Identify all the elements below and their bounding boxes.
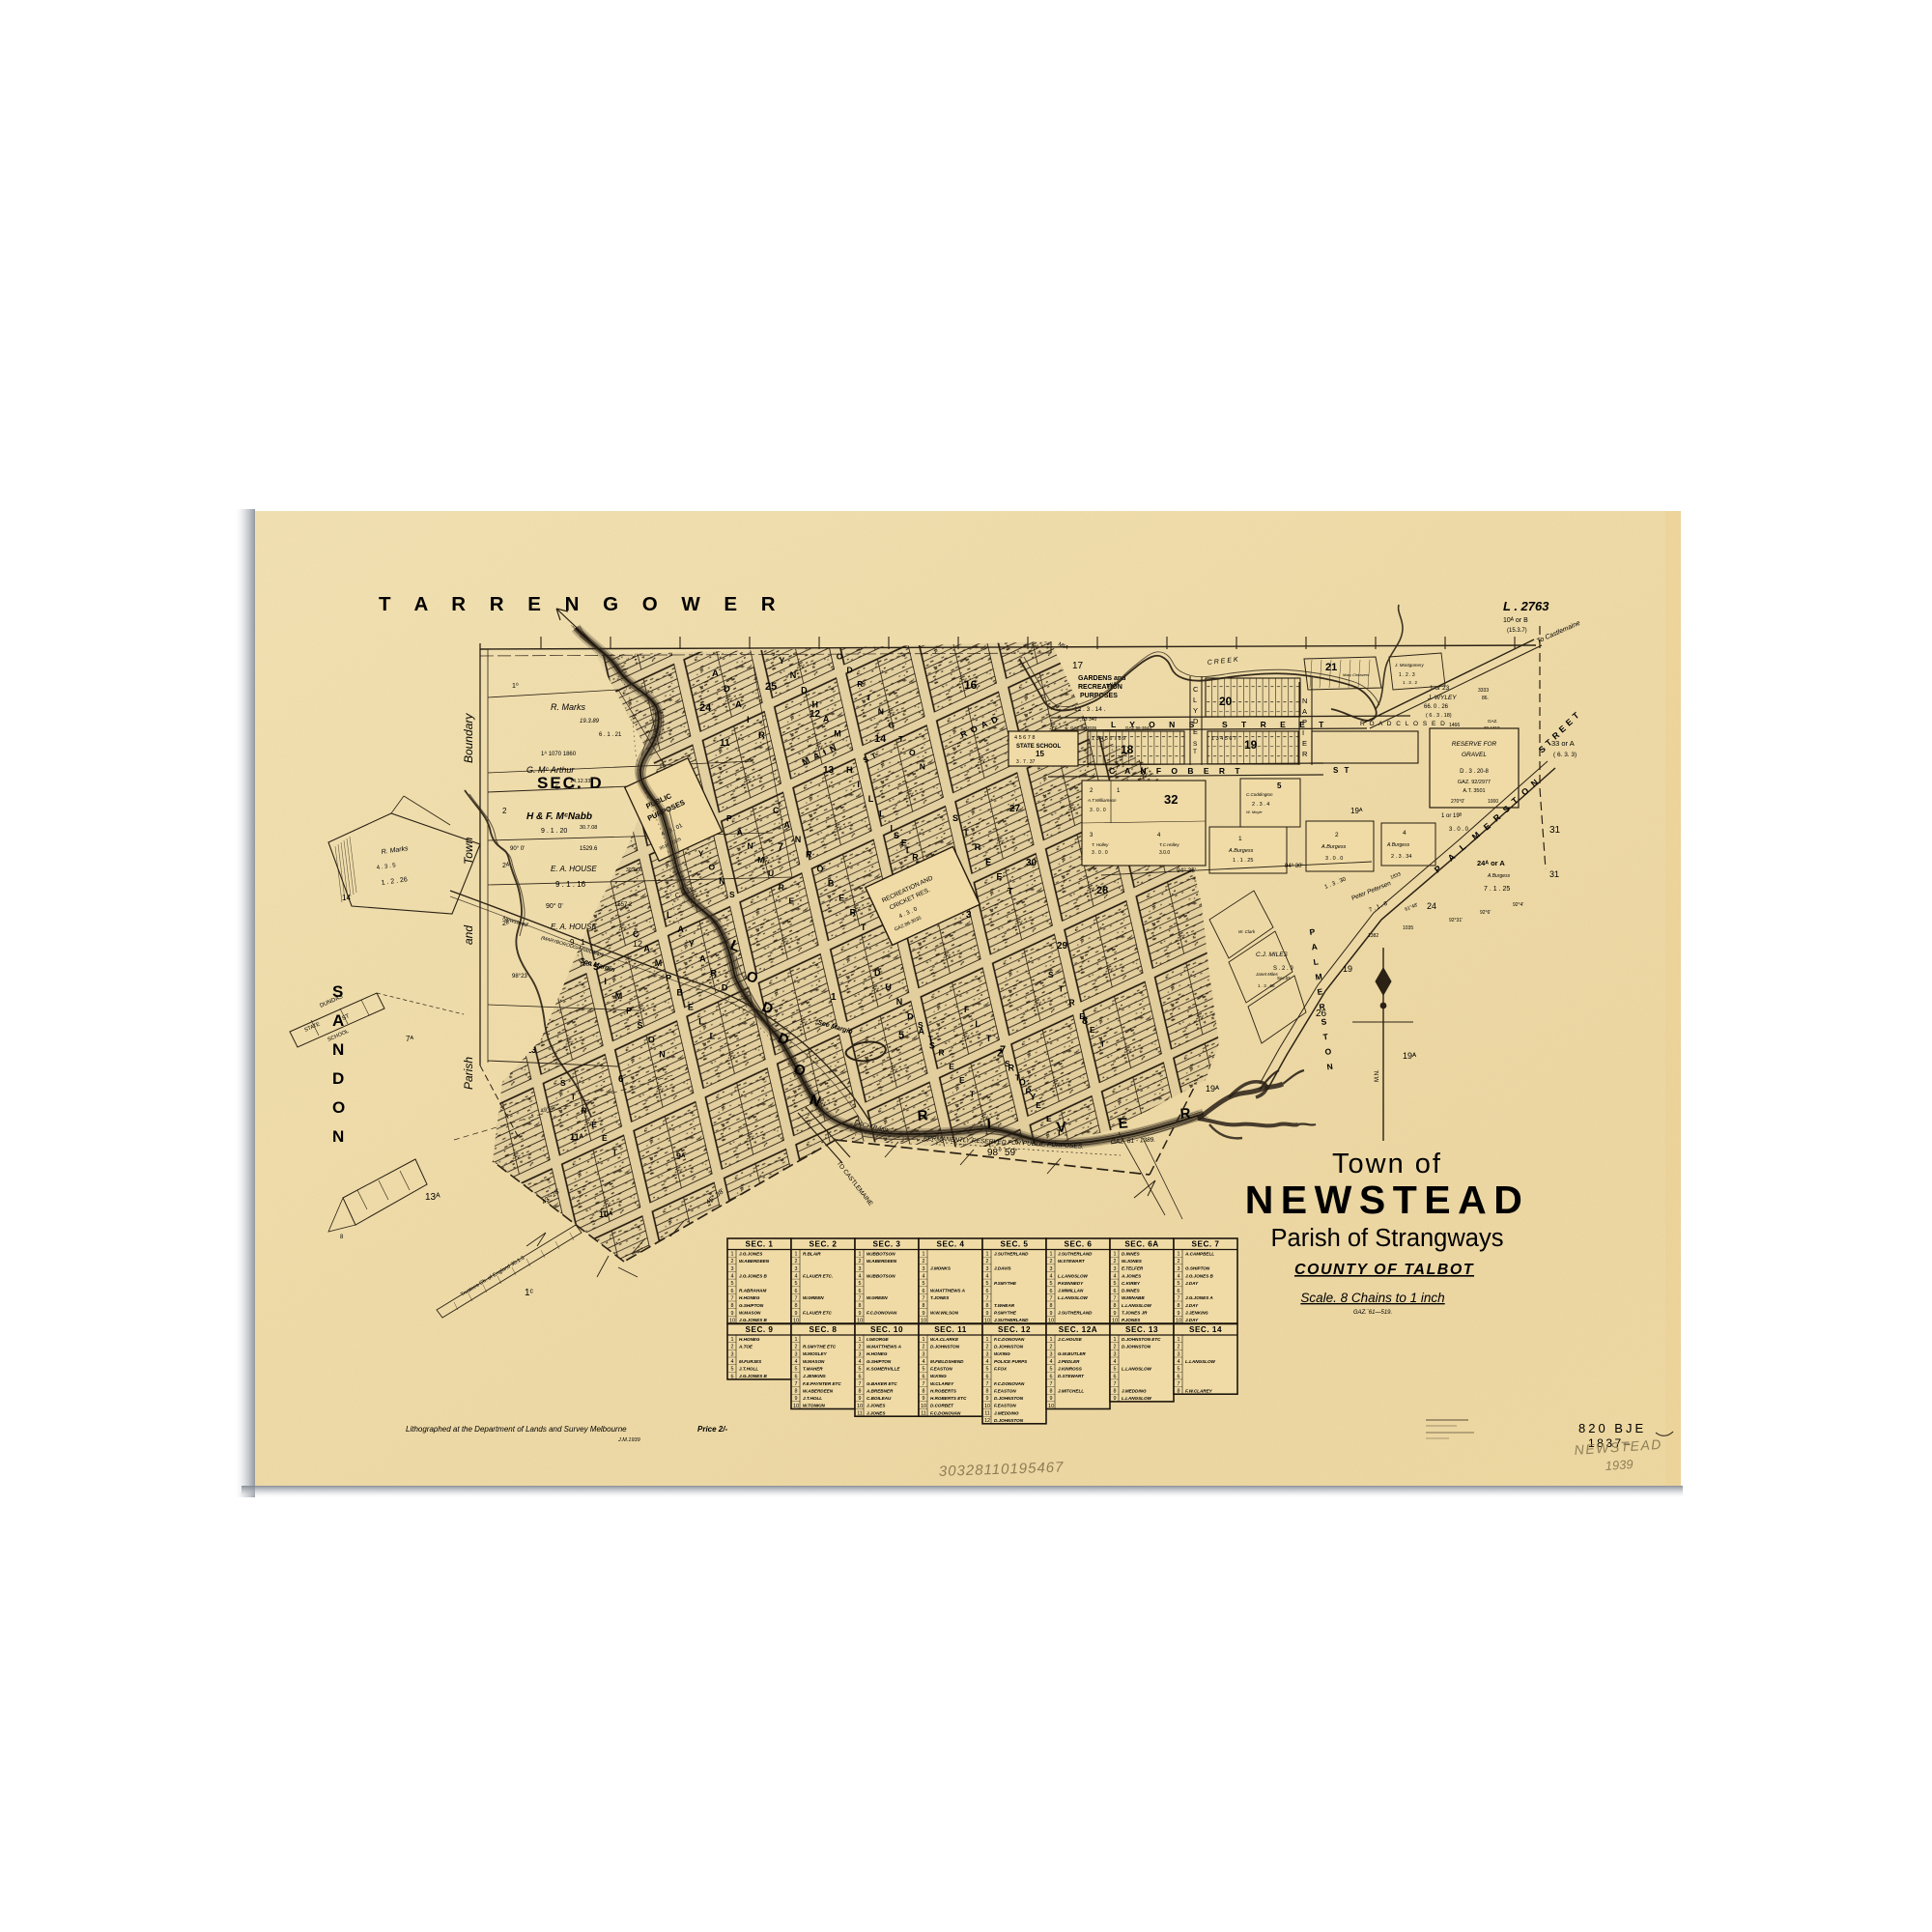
svg-text:W.MATTHEWS A: W.MATTHEWS A <box>867 1345 901 1350</box>
svg-text:J.SUTHERLAND: J.SUTHERLAND <box>1058 1311 1093 1316</box>
svg-text:W.ABERDEEN: W.ABERDEEN <box>739 1259 770 1264</box>
svg-text:29: 29 <box>1057 941 1068 952</box>
svg-text:2 . 3 . 34: 2 . 3 . 34 <box>1391 854 1411 860</box>
svg-text:E: E <box>949 1062 954 1071</box>
svg-text:T: T <box>571 1092 577 1101</box>
svg-text:3: 3 <box>731 1266 734 1272</box>
svg-text:D: D <box>801 685 808 695</box>
svg-text:A: A <box>712 668 719 679</box>
svg-text:U: U <box>768 868 774 878</box>
svg-text:4: 4 <box>986 1359 989 1365</box>
svg-text:1: 1 <box>1050 1337 1053 1343</box>
svg-text:19: 19 <box>1244 738 1258 752</box>
svg-text:14: 14 <box>342 894 351 902</box>
svg-text:3: 3 <box>795 1266 798 1272</box>
svg-text:T: T <box>986 1034 992 1043</box>
svg-text:30: 30 <box>1026 858 1037 868</box>
svg-text:1: 1 <box>859 1337 862 1343</box>
svg-text:21: 21 <box>1325 662 1337 673</box>
svg-text:RESERVE FOR: RESERVE FOR <box>1452 741 1497 748</box>
svg-text:E.TELFER: E.TELFER <box>1122 1266 1144 1271</box>
svg-text:W.IBBOTSON: W.IBBOTSON <box>867 1251 895 1256</box>
svg-text:H & F. MᶜNabb: H & F. MᶜNabb <box>526 811 592 822</box>
svg-text:4: 4 <box>1114 1274 1117 1280</box>
svg-text:R: R <box>758 730 765 741</box>
svg-text:10: 10 <box>984 1318 990 1323</box>
svg-text:9: 9 <box>1050 1396 1053 1402</box>
svg-text:A.TOE: A.TOE <box>738 1345 753 1350</box>
svg-text:6 . 1 . 21: 6 . 1 . 21 <box>599 732 622 738</box>
svg-text:3: 3 <box>986 1351 989 1357</box>
svg-text:R: R <box>1179 1105 1191 1122</box>
svg-text:S T R E E T: S T R E E T <box>1222 720 1329 729</box>
svg-text:H.HONEG: H.HONEG <box>739 1337 760 1342</box>
svg-text:2: 2 <box>1335 832 1339 838</box>
svg-text:J.JONES: J.JONES <box>867 1410 886 1415</box>
svg-text:E: E <box>997 871 1003 881</box>
svg-text:W.STEWART: W.STEWART <box>1058 1259 1086 1264</box>
svg-text:1: 1 <box>1178 1252 1180 1258</box>
svg-text:L.LANGSLOW: L.LANGSLOW <box>1058 1273 1089 1278</box>
svg-text:E: E <box>985 857 991 867</box>
svg-text:1529.6: 1529.6 <box>580 846 598 852</box>
svg-text:R: R <box>857 679 863 689</box>
svg-text:3 . 0 . 0: 3 . 0 . 0 <box>1325 856 1343 862</box>
svg-text:POLICE PURPS: POLICE PURPS <box>994 1359 1028 1364</box>
svg-text:1⁰: 1⁰ <box>512 682 519 690</box>
svg-text:Price 2/-: Price 2/- <box>697 1425 727 1434</box>
svg-text:7ᴬ: 7ᴬ <box>406 1035 413 1043</box>
svg-text:U: U <box>885 982 892 992</box>
svg-text:L.LANGSLOW: L.LANGSLOW <box>1185 1359 1216 1364</box>
svg-text:J.G.JONES B: J.G.JONES B <box>739 1374 768 1378</box>
svg-text:C.KIRBY: C.KIRBY <box>1122 1281 1141 1286</box>
svg-text:E: E <box>838 894 844 903</box>
svg-text:SEC. 12A: SEC. 12A <box>1059 1325 1097 1334</box>
svg-text:J.G.JONES: J.G.JONES <box>739 1251 763 1256</box>
svg-text:R.ABRAHAM: R.ABRAHAM <box>739 1289 766 1293</box>
svg-text:( 6. 3. 3): ( 6. 3. 3) <box>1553 752 1577 758</box>
svg-text:3 . 0 . 0: 3 . 0 . 0 <box>1092 850 1108 856</box>
svg-text:L.LANGSLOW: L.LANGSLOW <box>1058 1295 1089 1300</box>
svg-text:86.: 86. <box>1482 696 1489 701</box>
svg-text:5: 5 <box>795 1281 798 1287</box>
svg-text:2: 2 <box>731 1345 734 1350</box>
svg-text:16: 16 <box>964 678 978 692</box>
svg-text:J.DAY: J.DAY <box>1185 1318 1199 1322</box>
svg-text:8: 8 <box>986 1303 989 1309</box>
svg-text:4: 4 <box>1050 1359 1053 1365</box>
svg-text:2: 2 <box>795 1259 798 1264</box>
svg-text:W.CLAREY: W.CLAREY <box>930 1381 954 1386</box>
svg-text:6: 6 <box>1178 1289 1180 1294</box>
svg-text:1: 1 <box>1114 1252 1117 1258</box>
svg-text:E. A. HOUSE: E. A. HOUSE <box>551 865 597 873</box>
svg-text:D.JOHNSTON: D.JOHNSTON <box>994 1418 1024 1423</box>
svg-text:SEC. D: SEC. D <box>537 774 604 792</box>
svg-text:3: 3 <box>966 910 972 921</box>
svg-text:A.BREBNER: A.BREBNER <box>866 1388 894 1393</box>
svg-text:J.MEDDING: J.MEDDING <box>1122 1388 1147 1393</box>
svg-text:F.C.DONOVAN: F.C.DONOVAN <box>994 1381 1025 1386</box>
svg-text:9: 9 <box>923 1396 925 1402</box>
svg-text:10: 10 <box>1048 1318 1054 1323</box>
svg-text:SEC. 6: SEC. 6 <box>1065 1240 1093 1249</box>
svg-text:31: 31 <box>1549 869 1559 879</box>
svg-text:L.LANGSLOW: L.LANGSLOW <box>1122 1396 1152 1401</box>
svg-text:GAZ.: GAZ. <box>1488 719 1498 724</box>
svg-text:3: 3 <box>1050 1266 1053 1272</box>
svg-text:R: R <box>711 968 718 978</box>
svg-text:S: S <box>729 890 735 899</box>
svg-text:P.SMYTHE: P.SMYTHE <box>994 1311 1017 1316</box>
svg-text:8: 8 <box>1082 1015 1088 1027</box>
svg-text:J.MIMILLAN: J.MIMILLAN <box>1058 1289 1084 1293</box>
svg-text:S: S <box>638 1020 643 1030</box>
svg-text:COUNTY OF TALBOT: COUNTY OF TALBOT <box>1294 1262 1474 1278</box>
svg-text:4: 4 <box>859 1274 862 1280</box>
svg-text:270°0': 270°0' <box>1451 799 1464 805</box>
svg-text:A.JONES: A.JONES <box>1121 1273 1142 1278</box>
svg-text:1: 1 <box>986 1337 989 1343</box>
svg-text:9: 9 <box>1114 1396 1117 1402</box>
svg-text:90° 0': 90° 0' <box>510 846 525 852</box>
svg-text:4: 4 <box>1114 1359 1117 1365</box>
svg-text:J.SUTHERLAND: J.SUTHERLAND <box>994 1251 1029 1256</box>
svg-text:6: 6 <box>1050 1289 1053 1294</box>
svg-text:10: 10 <box>793 1404 799 1409</box>
svg-text:A.Burgess: A.Burgess <box>1228 848 1254 854</box>
svg-text:10: 10 <box>921 1404 926 1409</box>
svg-text:13ᴬ: 13ᴬ <box>425 1192 440 1203</box>
svg-text:6: 6 <box>1114 1374 1117 1379</box>
svg-text:9: 9 <box>795 1396 798 1402</box>
svg-text:N: N <box>332 1040 344 1059</box>
svg-text:C.Coddington: C.Coddington <box>1246 792 1273 797</box>
svg-text:K.SOMERVILLE: K.SOMERVILLE <box>867 1367 900 1372</box>
svg-text:NEWSTEAD: NEWSTEAD <box>1245 1178 1530 1222</box>
svg-text:A.T. 3501: A.T. 3501 <box>1463 788 1485 794</box>
svg-text:M: M <box>1315 972 1322 982</box>
svg-text:T: T <box>1193 749 1197 755</box>
svg-text:T: T <box>612 1147 618 1156</box>
svg-text:W.KING: W.KING <box>930 1374 947 1378</box>
svg-text:R: R <box>850 908 857 918</box>
svg-text:3 . 0 . 0: 3 . 0 . 0 <box>1090 808 1106 813</box>
svg-text:8: 8 <box>795 1389 798 1395</box>
svg-text:10: 10 <box>1176 1318 1181 1323</box>
svg-text:N: N <box>878 706 884 716</box>
svg-text:M.FIELDSHEND: M.FIELDSHEND <box>930 1359 964 1364</box>
svg-text:SEC. 9: SEC. 9 <box>746 1325 774 1334</box>
svg-text:T: T <box>1015 1072 1021 1082</box>
svg-text:Town of: Town of <box>1332 1149 1442 1179</box>
svg-text:W.KING: W.KING <box>994 1351 1010 1356</box>
svg-text:J. WYLEY: J. WYLEY <box>1427 695 1457 701</box>
svg-text:(15.3.7): (15.3.7) <box>1507 628 1527 634</box>
svg-text:2: 2 <box>795 1345 798 1350</box>
svg-text:2: 2 <box>986 1259 989 1264</box>
svg-text:Parish: Parish <box>462 1057 475 1090</box>
svg-text:24ᴬ or A: 24ᴬ or A <box>1477 859 1505 867</box>
svg-text:3: 3 <box>923 1266 925 1272</box>
svg-text:W.MINABB: W.MINABB <box>1122 1295 1145 1300</box>
svg-text:E: E <box>789 896 795 906</box>
svg-text:N: N <box>896 997 903 1007</box>
svg-text:W.ABERDEEN: W.ABERDEEN <box>867 1259 897 1264</box>
svg-text:D: D <box>907 1011 914 1021</box>
svg-text:1035: 1035 <box>1403 925 1413 931</box>
svg-text:W.W.WILSON: W.W.WILSON <box>930 1311 959 1316</box>
svg-text:J.G.JONES B: J.G.JONES B <box>739 1273 768 1278</box>
svg-text:4: 4 <box>986 1274 989 1280</box>
svg-text:5: 5 <box>1277 781 1282 790</box>
svg-text:5: 5 <box>1114 1281 1117 1287</box>
svg-text:N: N <box>790 670 797 680</box>
svg-text:C A N F O B E R T: C A N F O B E R T <box>1109 766 1244 776</box>
svg-text:T: T <box>970 1089 976 1098</box>
svg-text:T: T <box>861 923 867 932</box>
svg-text:J.JENKINS: J.JENKINS <box>803 1374 827 1378</box>
svg-text:R: R <box>917 1107 928 1124</box>
svg-text:4: 4 <box>1178 1359 1180 1365</box>
svg-text:4: 4 <box>1050 1274 1053 1280</box>
svg-text:O: O <box>709 863 716 872</box>
svg-text:T A R R E N G O W E R: T A R R E N G O W E R <box>379 593 784 615</box>
svg-text:1: 1 <box>795 1252 798 1258</box>
svg-text:4: 4 <box>731 1359 734 1365</box>
svg-text:W.MASON: W.MASON <box>803 1359 825 1364</box>
svg-text:E: E <box>1193 727 1198 736</box>
svg-text:1: 1 <box>923 1252 925 1258</box>
svg-text:G.SHIPTON: G.SHIPTON <box>1185 1266 1210 1271</box>
svg-text:O: O <box>837 651 843 661</box>
svg-text:3: 3 <box>1050 1351 1053 1357</box>
svg-text:6: 6 <box>795 1374 798 1379</box>
svg-text:J.DAVIS: J.DAVIS <box>994 1266 1011 1271</box>
svg-text:7: 7 <box>778 841 783 853</box>
svg-text:5: 5 <box>795 1367 798 1373</box>
svg-text:4: 4 <box>923 1274 925 1280</box>
svg-text:7: 7 <box>923 1381 925 1387</box>
svg-text:E: E <box>1118 1115 1128 1132</box>
svg-text:3: 3 <box>859 1351 862 1357</box>
svg-text:8: 8 <box>859 1389 862 1395</box>
svg-text:1000: 1000 <box>1488 799 1498 805</box>
svg-text:A: A <box>643 944 650 953</box>
svg-text:E: E <box>591 1120 597 1129</box>
svg-text:L: L <box>879 809 885 818</box>
svg-text:L Y O N S: L Y O N S <box>1111 720 1200 729</box>
svg-text:M.FURJES: M.FURJES <box>739 1359 762 1364</box>
svg-text:I: I <box>857 780 860 789</box>
svg-text:5: 5 <box>898 1030 904 1041</box>
svg-text:O: O <box>648 1036 655 1045</box>
svg-text:25: 25 <box>765 681 777 693</box>
svg-text:5: 5 <box>1050 1367 1053 1373</box>
svg-text:1: 1 <box>859 1252 862 1258</box>
svg-text:5: 5 <box>923 1281 925 1287</box>
svg-text:D: D <box>724 684 730 695</box>
svg-text:J.MITCHELL: J.MITCHELL <box>1058 1388 1084 1393</box>
svg-text:6: 6 <box>859 1374 862 1379</box>
svg-text:J.MONKS: J.MONKS <box>930 1266 952 1271</box>
svg-text:4: 4 <box>1403 830 1406 837</box>
svg-text:19ᴬ: 19ᴬ <box>1403 1051 1417 1061</box>
svg-text:2: 2 <box>1050 1259 1053 1264</box>
svg-text:5: 5 <box>1114 1367 1117 1373</box>
svg-text:1: 1 <box>1114 1337 1117 1343</box>
svg-text:Y: Y <box>698 848 704 858</box>
svg-text:N: N <box>1302 696 1307 705</box>
svg-text:A: A <box>783 820 790 830</box>
svg-text:F.FOX: F.FOX <box>994 1367 1008 1372</box>
svg-text:3: 3 <box>1114 1266 1117 1272</box>
svg-text:1: 1 <box>986 1252 989 1258</box>
svg-text:7: 7 <box>731 1296 734 1302</box>
svg-text:SEC. 5: SEC. 5 <box>1001 1240 1029 1249</box>
svg-text:1 . 3 . 2: 1 . 3 . 2 <box>1403 680 1418 685</box>
svg-text:10: 10 <box>921 1318 926 1323</box>
svg-text:9: 9 <box>731 1311 734 1317</box>
svg-text:12: 12 <box>984 1418 990 1424</box>
svg-text:J.PEDLER: J.PEDLER <box>1058 1359 1080 1364</box>
svg-text:7: 7 <box>1114 1296 1117 1302</box>
svg-text:6: 6 <box>1050 1374 1053 1379</box>
svg-text:2: 2 <box>986 1345 989 1350</box>
svg-text:7: 7 <box>1000 1044 1006 1056</box>
svg-text:E: E <box>688 1003 694 1012</box>
svg-text:D . 3 . 20-8: D . 3 . 20-8 <box>1460 769 1489 775</box>
svg-text:1 . 2 . 3: 1 . 2 . 3 <box>1399 672 1415 678</box>
svg-text:3: 3 <box>1114 1351 1117 1357</box>
svg-text:5: 5 <box>1178 1281 1180 1287</box>
svg-text:9: 9 <box>859 1396 862 1402</box>
svg-text:8: 8 <box>1178 1303 1180 1309</box>
svg-text:GAZ.96-3644.: GAZ.96-3644. <box>1125 725 1152 730</box>
svg-text:J.JENKINS: J.JENKINS <box>1185 1311 1209 1316</box>
svg-text:7: 7 <box>1050 1296 1053 1302</box>
svg-text:D: D <box>847 666 853 675</box>
svg-text:11: 11 <box>921 1411 926 1417</box>
svg-text:J.G.JONES B: J.G.JONES B <box>739 1318 768 1322</box>
svg-text:D: D <box>1193 717 1199 725</box>
svg-text:N: N <box>719 876 724 886</box>
svg-text:1: 1 <box>1238 836 1242 842</box>
svg-text:4: 4 <box>795 1359 798 1365</box>
svg-text:820 BJE: 820 BJE <box>1578 1421 1646 1435</box>
svg-text:27: 27 <box>1009 804 1021 814</box>
svg-text:J.KINROSS: J.KINROSS <box>1058 1367 1083 1372</box>
svg-text:24: 24 <box>1427 901 1436 911</box>
svg-text:A: A <box>677 924 684 934</box>
svg-text:2: 2 <box>923 1259 925 1264</box>
svg-text:L.LANGSLOW: L.LANGSLOW <box>1122 1367 1152 1372</box>
svg-text:E: E <box>602 1133 608 1143</box>
svg-text:E: E <box>1302 739 1307 748</box>
svg-text:5: 5 <box>731 1367 734 1373</box>
svg-text:6: 6 <box>923 1289 925 1294</box>
svg-text:C.J. MILES: C.J. MILES <box>1256 952 1289 958</box>
svg-text:3.0.0: 3.0.0 <box>1159 850 1170 856</box>
svg-text:4: 4 <box>1178 1274 1180 1280</box>
svg-text:A.Burgess: A.Burgess <box>1386 842 1410 848</box>
svg-text:6: 6 <box>1178 1374 1180 1379</box>
svg-text:3 . 0 . 0: 3 . 0 . 0 <box>1449 827 1469 833</box>
svg-text:18: 18 <box>1121 743 1134 756</box>
svg-text:P: P <box>1302 718 1307 726</box>
svg-text:1 . 3 . 68: 1 . 3 . 68 <box>1258 983 1275 988</box>
svg-text:J.T.HOLL: J.T.HOLL <box>739 1367 758 1372</box>
svg-text:C.BOILEAU: C.BOILEAU <box>867 1396 892 1401</box>
svg-text:2: 2 <box>1114 1259 1117 1264</box>
svg-text:3: 3 <box>731 1351 734 1357</box>
svg-text:SEC. 11: SEC. 11 <box>934 1325 967 1334</box>
svg-text:R.SMYTHE ETC: R.SMYTHE ETC <box>803 1345 837 1350</box>
svg-text:I: I <box>867 693 869 702</box>
svg-text:J.SUTHERLAND: J.SUTHERLAND <box>994 1318 1029 1322</box>
svg-text:1: 1 <box>1050 1252 1053 1258</box>
svg-text:E: E <box>1046 1114 1052 1123</box>
svg-text:P: P <box>726 813 732 823</box>
svg-text:R: R <box>975 842 981 852</box>
svg-text:31: 31 <box>1549 825 1561 836</box>
svg-text:Y: Y <box>689 939 695 949</box>
svg-text:W.MOSLEY: W.MOSLEY <box>803 1351 828 1356</box>
svg-text:26: 26 <box>1316 1009 1327 1019</box>
svg-text:SEC. 13: SEC. 13 <box>1125 1325 1158 1334</box>
svg-text:GRAVEL: GRAVEL <box>1462 752 1487 758</box>
svg-text:19: 19 <box>1343 964 1352 974</box>
svg-text:10: 10 <box>793 1318 799 1323</box>
svg-text:7: 7 <box>1050 1381 1053 1387</box>
svg-text:W.GREEN: W.GREEN <box>867 1295 888 1300</box>
svg-text:13: 13 <box>823 765 835 776</box>
svg-text:B: B <box>677 987 684 997</box>
svg-text:A: A <box>332 1011 344 1030</box>
svg-text:R: R <box>939 1048 945 1058</box>
svg-text:A: A <box>1302 707 1307 716</box>
svg-text:7: 7 <box>986 1381 989 1387</box>
svg-text:10: 10 <box>1112 1318 1118 1323</box>
svg-text:B: B <box>828 879 835 889</box>
svg-text:R: R <box>1026 1087 1032 1096</box>
svg-text:G: G <box>889 721 895 730</box>
svg-text:L: L <box>1193 696 1197 704</box>
svg-text:32: 32 <box>1164 792 1178 807</box>
svg-text:9 . 1 . 16: 9 . 1 . 16 <box>555 880 586 889</box>
svg-text:S: S <box>332 982 343 1001</box>
svg-text:10: 10 <box>857 1318 863 1323</box>
svg-text:4: 4 <box>731 1274 734 1280</box>
svg-text:A: A <box>699 953 706 963</box>
svg-text:10: 10 <box>729 1318 735 1323</box>
svg-text:Y: Y <box>779 656 784 666</box>
svg-text:S: S <box>1048 970 1054 980</box>
svg-text:6: 6 <box>859 1289 862 1294</box>
svg-text:1: 1 <box>731 1252 734 1258</box>
svg-text:3: 3 <box>923 1351 925 1357</box>
svg-text:G.SHIPTON: G.SHIPTON <box>739 1303 764 1308</box>
svg-text:R.BLAIR: R.BLAIR <box>803 1251 821 1256</box>
svg-text:A.CAMPBELL: A.CAMPBELL <box>1184 1251 1214 1256</box>
svg-text:G.SHIPTON: G.SHIPTON <box>867 1359 892 1364</box>
svg-text:2: 2 <box>923 1345 925 1350</box>
svg-text:J.DAY: J.DAY <box>1185 1281 1199 1286</box>
svg-text:W. Moyle: W. Moyle <box>1246 810 1263 814</box>
svg-text:Scale. 8 Chains to 1 inch: Scale. 8 Chains to 1 inch <box>1300 1291 1444 1305</box>
svg-text:GAZ. 92/2977: GAZ. 92/2977 <box>1458 780 1491 785</box>
